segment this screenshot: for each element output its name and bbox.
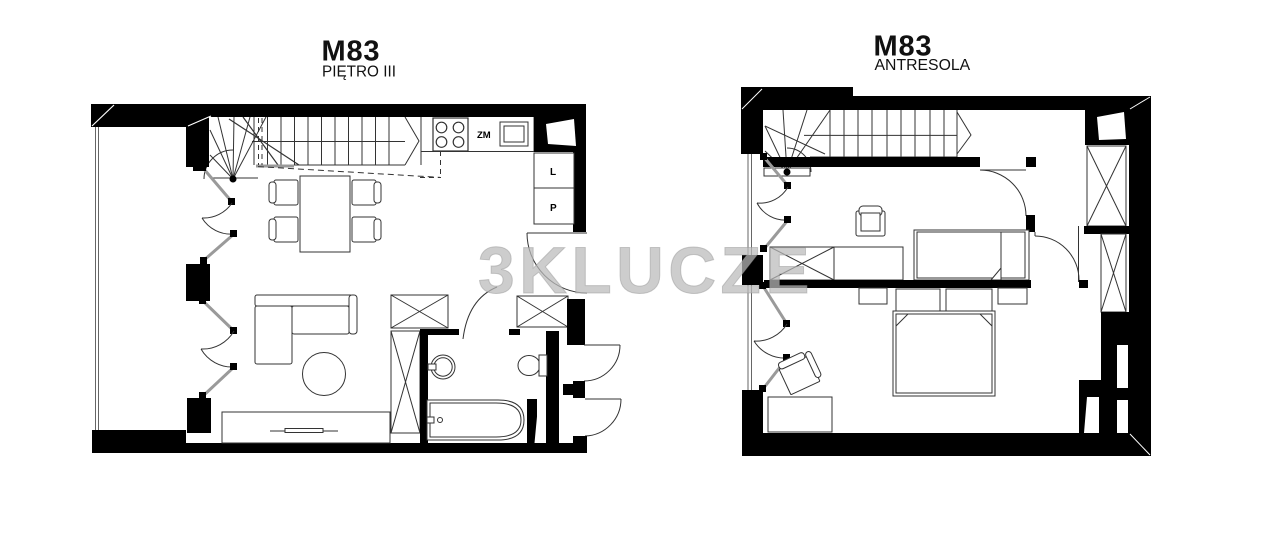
svg-text:P: P bbox=[550, 203, 557, 214]
svg-text:L: L bbox=[550, 167, 556, 178]
svg-text:ANTRESOLA: ANTRESOLA bbox=[875, 57, 971, 74]
svg-text:ZM: ZM bbox=[477, 130, 491, 141]
svg-text:3KLUCZE: 3KLUCZE bbox=[478, 233, 814, 307]
svg-text:PIĘTRO III: PIĘTRO III bbox=[322, 64, 396, 81]
